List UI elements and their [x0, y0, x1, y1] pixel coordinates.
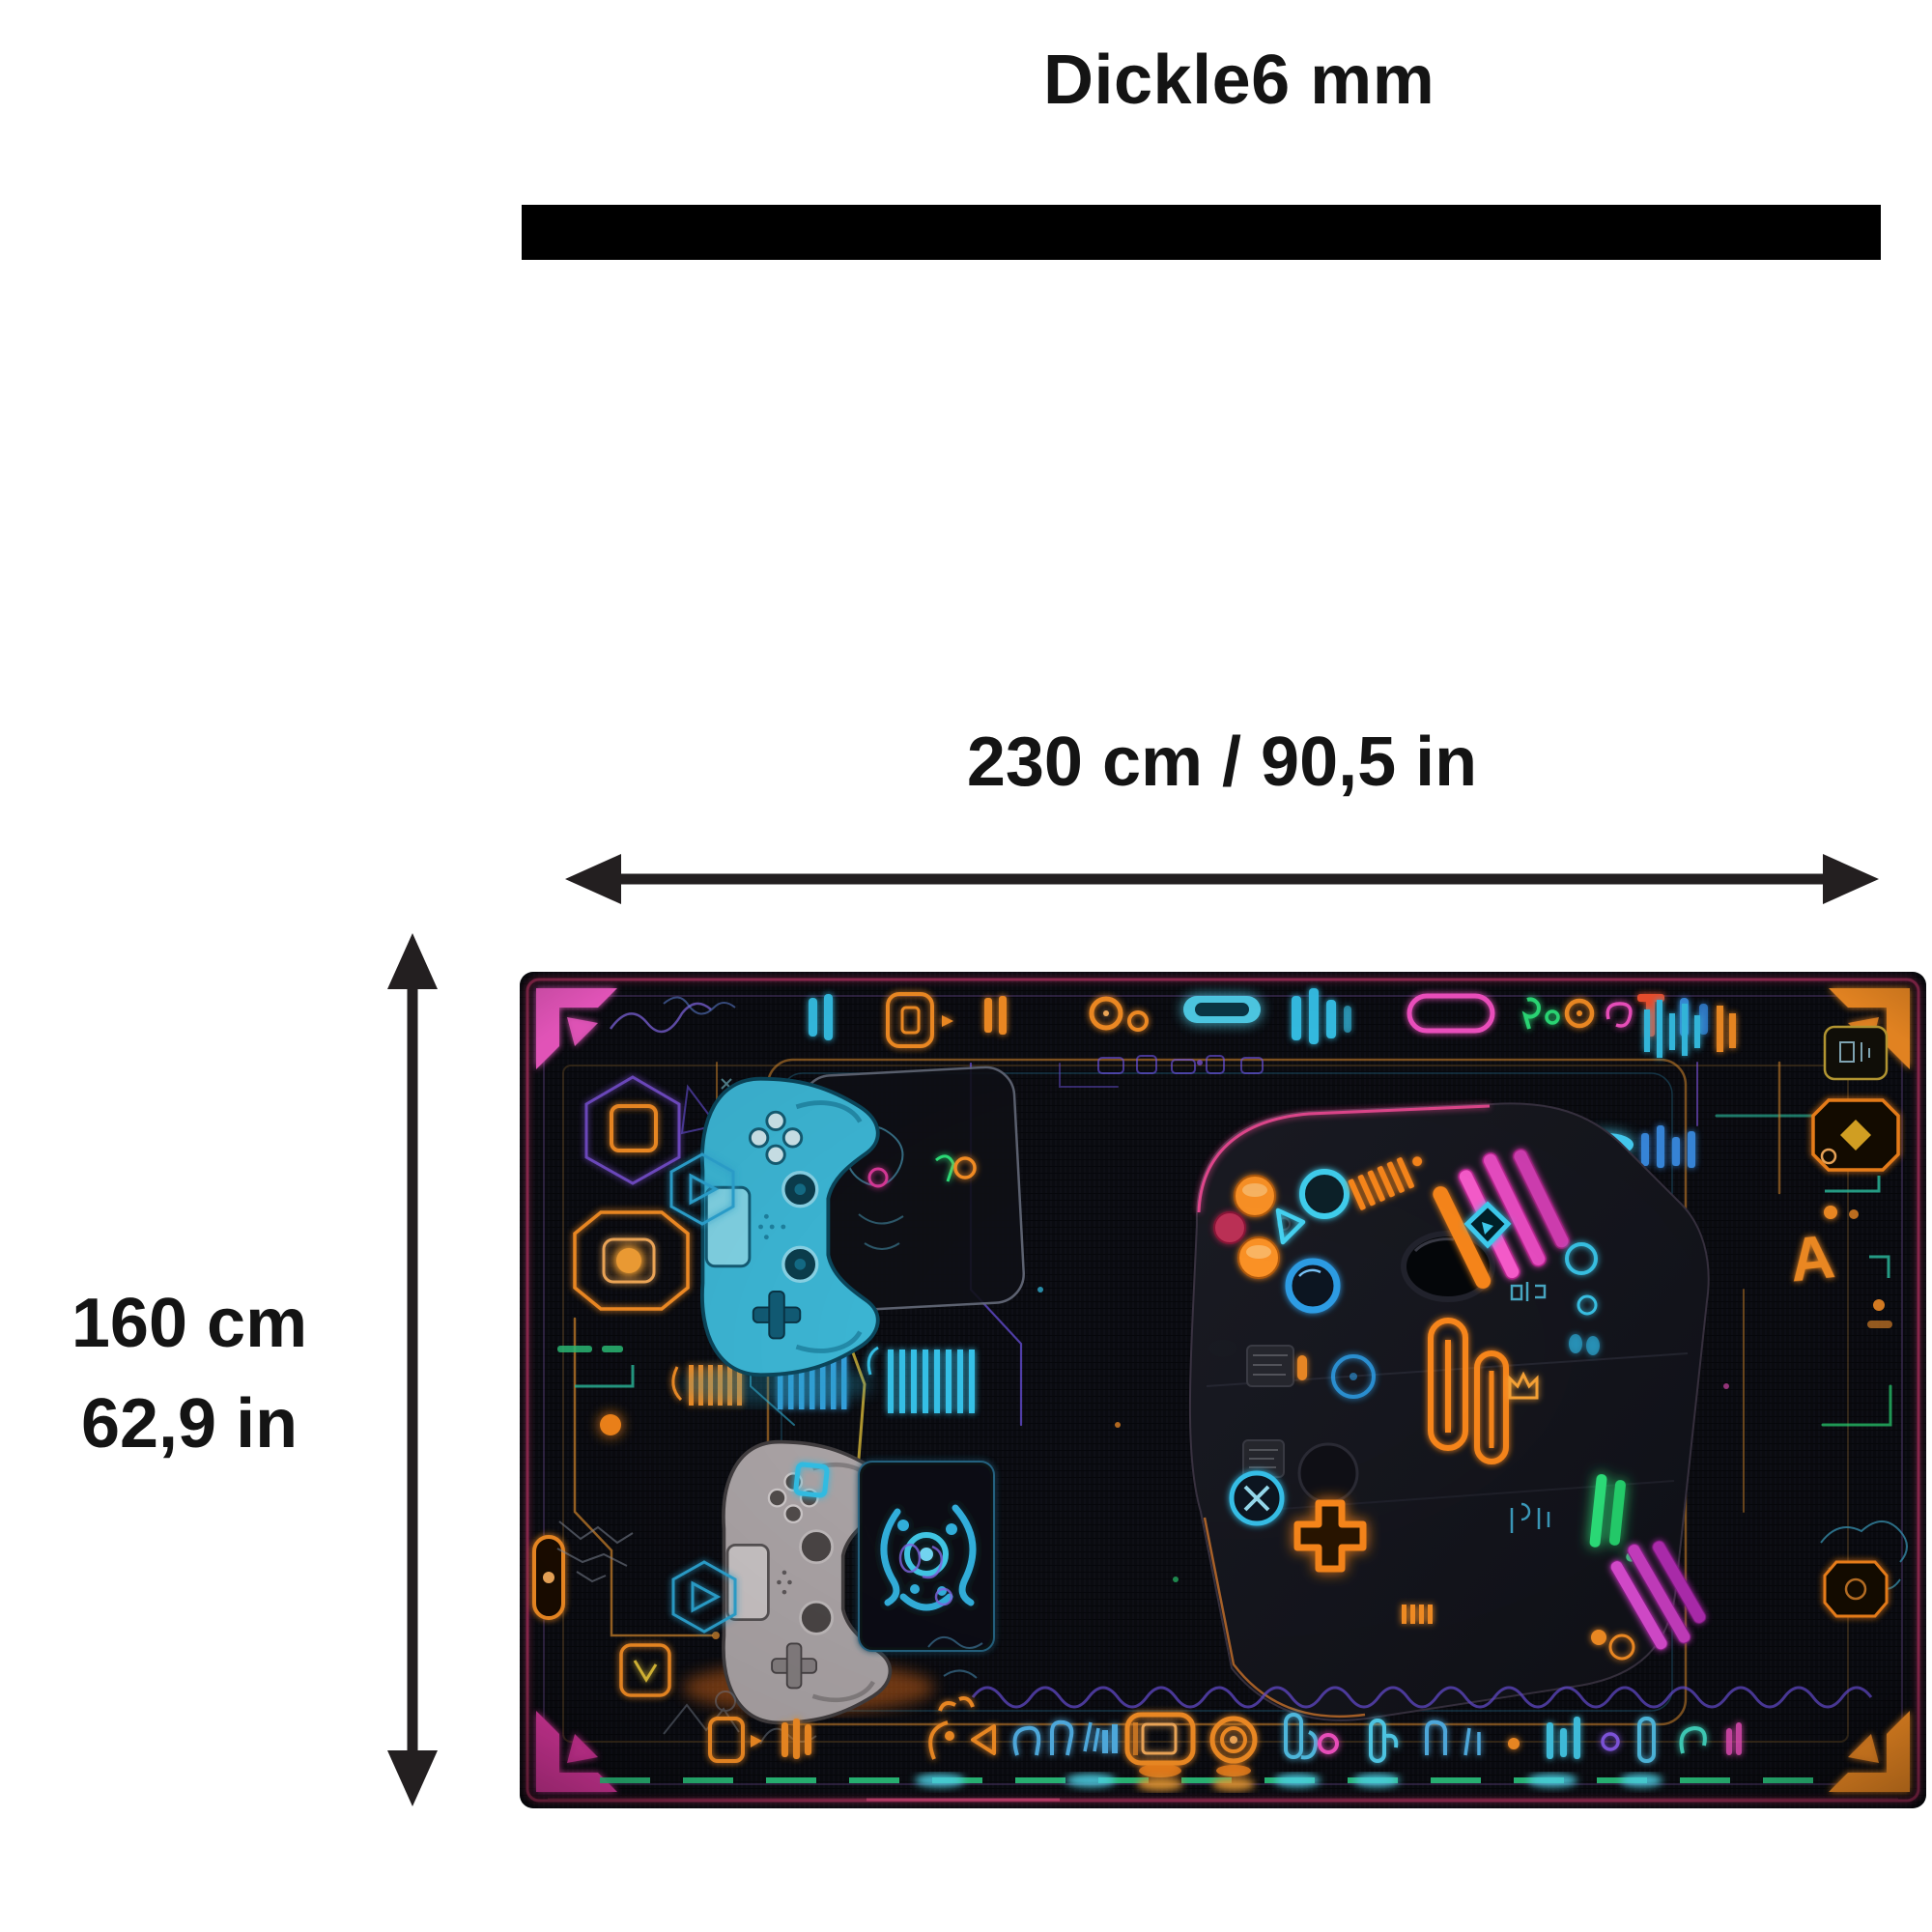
blue-ring-icon — [1289, 1262, 1337, 1310]
height-in-label: 62,9 in — [21, 1374, 357, 1474]
thickness-bar — [522, 205, 1881, 260]
orange-bars-small-icon — [781, 1719, 811, 1759]
cyan-capsule-icon — [1183, 996, 1261, 1023]
controller-touchpad — [706, 1187, 750, 1265]
controller-touchpad — [727, 1545, 768, 1619]
height-cm-label: 160 cm — [21, 1273, 357, 1374]
rug-product-image: A — [519, 971, 1927, 1809]
width-dimension-arrow — [565, 852, 1879, 906]
gamepad-large — [1190, 1103, 1713, 1720]
height-dimension-arrow — [385, 933, 440, 1806]
octagon-small-icon — [1825, 1562, 1887, 1616]
cross-ring-button-icon — [1232, 1473, 1282, 1523]
letter-a-glyph: A — [1786, 1221, 1837, 1294]
thickness-title: Dickle6 mm — [1043, 41, 1435, 120]
width-dimension-label: 230 cm / 90,5 in — [565, 723, 1879, 802]
arrowhead-up-icon — [387, 933, 438, 989]
arrowhead-right-icon — [1823, 854, 1879, 904]
octagon-diamond-icon — [1813, 1100, 1898, 1170]
green-dashes-icon — [557, 1346, 623, 1352]
arrowhead-left-icon — [565, 854, 621, 904]
arrowhead-down-icon — [387, 1750, 438, 1806]
emblem-hands — [859, 1462, 994, 1651]
cyan-circle-button-icon — [1302, 1172, 1347, 1216]
badge-rect-icon — [1825, 1027, 1887, 1079]
height-dimension-label: 160 cm 62,9 in — [21, 1273, 357, 1474]
crimson-button-icon — [1214, 1212, 1245, 1243]
orange-glow-dot-icon — [600, 1414, 621, 1435]
